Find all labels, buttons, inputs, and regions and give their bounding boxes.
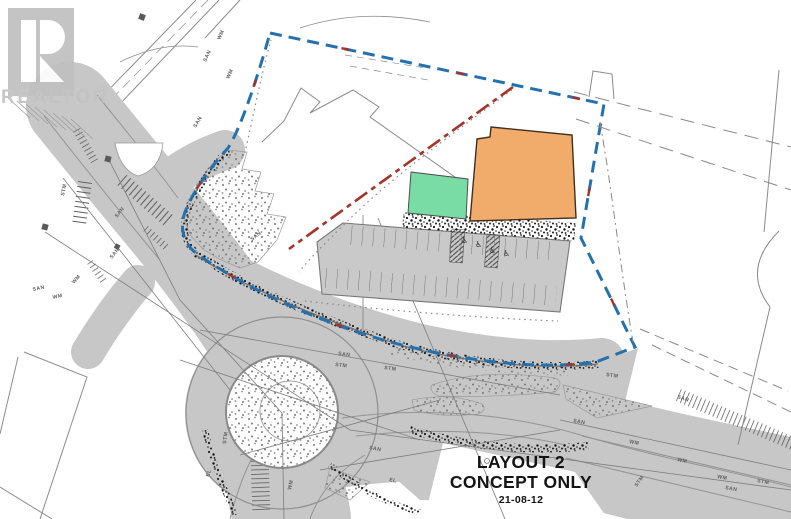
plan-date: 21-08-12	[499, 494, 543, 506]
buildings	[408, 127, 576, 221]
roads-layer	[44, 95, 791, 519]
utility-label: WM	[71, 274, 82, 285]
building-orange	[470, 127, 576, 221]
layout-title: LAYOUT 2	[477, 452, 565, 472]
utility-label: SAN	[32, 285, 45, 293]
concept-title: CONCEPT ONLY	[450, 472, 592, 492]
wheelchair-icon: ♿	[475, 240, 482, 249]
utility-label: WM	[216, 29, 226, 41]
wheelchair-icon: ♿	[461, 236, 468, 245]
utility-label: EL	[389, 477, 398, 485]
wheelchair-icon: ♿	[489, 246, 496, 255]
site-plan-image: SANWMWMSANSTMSANSANWMSANWMSANSANSTMSTMST…	[0, 0, 791, 519]
utility-label: SAN	[202, 49, 213, 63]
realtor-brand-text: REALTOR	[1, 87, 109, 108]
registered-mark: ®	[101, 84, 108, 94]
wheelchair-icon: ♿	[503, 249, 510, 258]
utility-label: WM	[225, 68, 235, 80]
building-green	[408, 172, 468, 219]
site-plan-svg: SANWMWMSANSTMSANSANWMSANWMSANSANSTMSTMST…	[0, 0, 791, 519]
utility-label: STM	[60, 183, 68, 196]
utility-label: SAN	[193, 115, 204, 129]
utility-label: WM	[52, 293, 63, 301]
